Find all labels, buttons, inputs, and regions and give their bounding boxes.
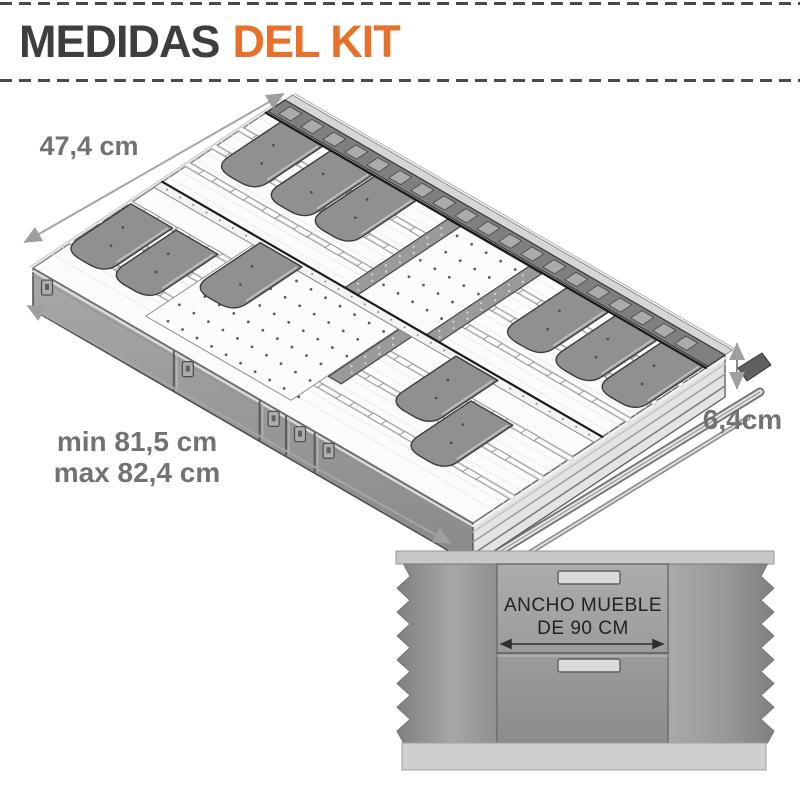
depth-dimension-label: 47,4 cm bbox=[18, 131, 160, 162]
width-max-label: max 82,4 cm bbox=[23, 457, 251, 488]
width-dimension-label: min 81,5 cm max 82,4 cm bbox=[23, 426, 251, 488]
cabinet-width-note-line1: ANCHO MUEBLE bbox=[489, 594, 677, 617]
height-dimension-label: 6,4cm bbox=[690, 404, 795, 436]
cabinet-front-illustration bbox=[396, 551, 774, 770]
width-min-label: min 81,5 cm bbox=[23, 426, 251, 457]
cabinet-width-note-line2: DE 90 CM bbox=[489, 617, 677, 640]
kit-dimensions-figure bbox=[0, 0, 800, 800]
cabinet-width-note: ANCHO MUEBLE DE 90 CM bbox=[489, 594, 677, 640]
page: MEDIDASDEL KIT bbox=[0, 0, 800, 800]
